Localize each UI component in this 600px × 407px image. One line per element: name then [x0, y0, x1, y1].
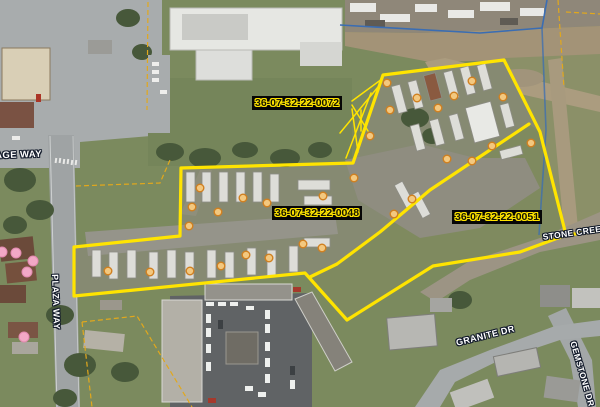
mobile-home-unit-marker	[318, 244, 326, 252]
mobile-home-unit-marker	[366, 132, 374, 140]
mobile-home-unit-marker	[488, 142, 496, 150]
mobile-home-unit-marker	[104, 267, 112, 275]
mobile-home-unit-marker	[413, 94, 421, 102]
mobile-home-unit-marker	[527, 139, 535, 147]
mobile-home-unit-marker	[390, 210, 398, 218]
street-label-plaza-way: PLAZA WAY	[50, 274, 62, 330]
mobile-home-unit-marker	[214, 208, 222, 216]
mobile-home-unit-marker	[185, 222, 193, 230]
mobile-home-unit-marker	[146, 268, 154, 276]
mobile-home-unit-marker	[383, 79, 391, 87]
mobile-home-unit-marker	[386, 106, 394, 114]
map-canvas	[0, 0, 600, 407]
mobile-home-unit-marker	[499, 93, 507, 101]
mobile-home-unit-marker	[188, 203, 196, 211]
mobile-home-unit-marker	[468, 77, 476, 85]
mobile-home-unit-marker	[242, 251, 250, 259]
tree-marker	[19, 332, 29, 342]
parcel-id-label-0051: 36-07-32-22-0051	[452, 210, 542, 224]
parcel-id-label-0048: 36-07-32-22-0048	[272, 206, 362, 220]
mobile-home-unit-marker	[263, 199, 271, 207]
tree-marker	[28, 256, 38, 266]
mobile-home-unit-marker	[350, 174, 358, 182]
mobile-home-unit-marker	[217, 262, 225, 270]
mobile-home-unit-marker	[265, 254, 273, 262]
mobile-home-unit-marker	[408, 195, 416, 203]
tree-marker	[11, 248, 21, 258]
mobile-home-unit-marker	[443, 155, 451, 163]
mobile-home-unit-marker	[186, 267, 194, 275]
tree-marker	[0, 247, 7, 257]
mobile-home-unit-marker	[468, 157, 476, 165]
mobile-home-unit-marker	[450, 92, 458, 100]
mobile-home-unit-marker	[319, 192, 327, 200]
mobile-home-unit-marker	[434, 104, 442, 112]
mobile-home-unit-marker	[239, 194, 247, 202]
parcel-id-label-0072: 36-07-32-22-0072	[252, 96, 342, 110]
mobile-home-unit-marker	[299, 240, 307, 248]
tree-marker	[22, 267, 32, 277]
mobile-home-unit-marker	[196, 184, 204, 192]
aerial-map[interactable]: VILLAGE WAY PLAZA WAY STONE CREEK GRANIT…	[0, 0, 600, 407]
